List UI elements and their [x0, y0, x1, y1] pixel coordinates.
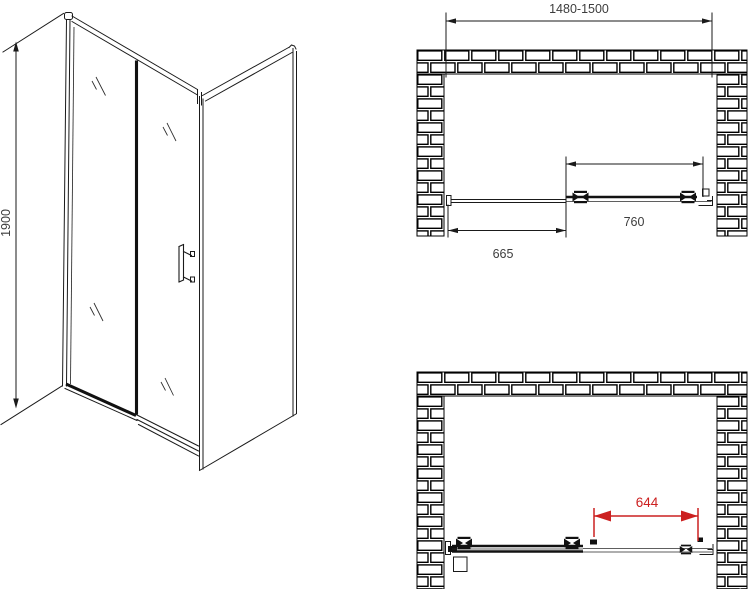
- opening-dimension-red: 644: [594, 495, 698, 541]
- red-arrow-right: [681, 511, 698, 522]
- height-dimension-label: 1900: [0, 209, 13, 237]
- roller-right: [680, 545, 692, 555]
- fixed-section-width-label: 665: [493, 247, 514, 261]
- brick-wall-right: [717, 74, 747, 236]
- brick-wall-left: [417, 74, 444, 236]
- track-rail: [583, 549, 712, 553]
- technical-drawing-page: 1900: [0, 0, 749, 589]
- open-passage-width-label: 644: [636, 495, 659, 510]
- brick-walls-top: [417, 50, 747, 236]
- left-wall-profile: [447, 196, 452, 206]
- red-arrow-left: [594, 511, 611, 522]
- height-dimension: 1900: [0, 14, 64, 425]
- roller-left: [456, 537, 472, 549]
- drawing-svg: 1900: [0, 0, 749, 589]
- right-wall-bracket: [699, 189, 713, 206]
- fixed-glass-panel: [451, 200, 566, 203]
- roller-middle: [564, 537, 580, 549]
- door-track-open: [446, 537, 714, 572]
- brick-lintel: [417, 372, 747, 396]
- overall-width-label: 1480-1500: [549, 2, 609, 16]
- plan-view-closed: 1480-1500 760 665: [417, 2, 747, 261]
- brick-wall-right: [717, 396, 747, 589]
- brick-lintel: [417, 50, 747, 74]
- fixed-section-dimension: 665: [448, 205, 566, 261]
- brick-wall-left: [417, 396, 444, 589]
- enclosure-frame: [63, 13, 297, 471]
- door-panel-width-label: 760: [624, 215, 645, 229]
- glass-reflection-marks: [90, 77, 176, 396]
- isometric-view: 1900: [0, 13, 297, 471]
- bottom-guide-bracket: [454, 557, 468, 572]
- door-track-closed: [447, 189, 713, 206]
- door-handle: [179, 245, 195, 283]
- brick-walls-bottom: [417, 372, 747, 589]
- door-stopper: [590, 540, 597, 545]
- plan-view-open: 644: [417, 372, 747, 589]
